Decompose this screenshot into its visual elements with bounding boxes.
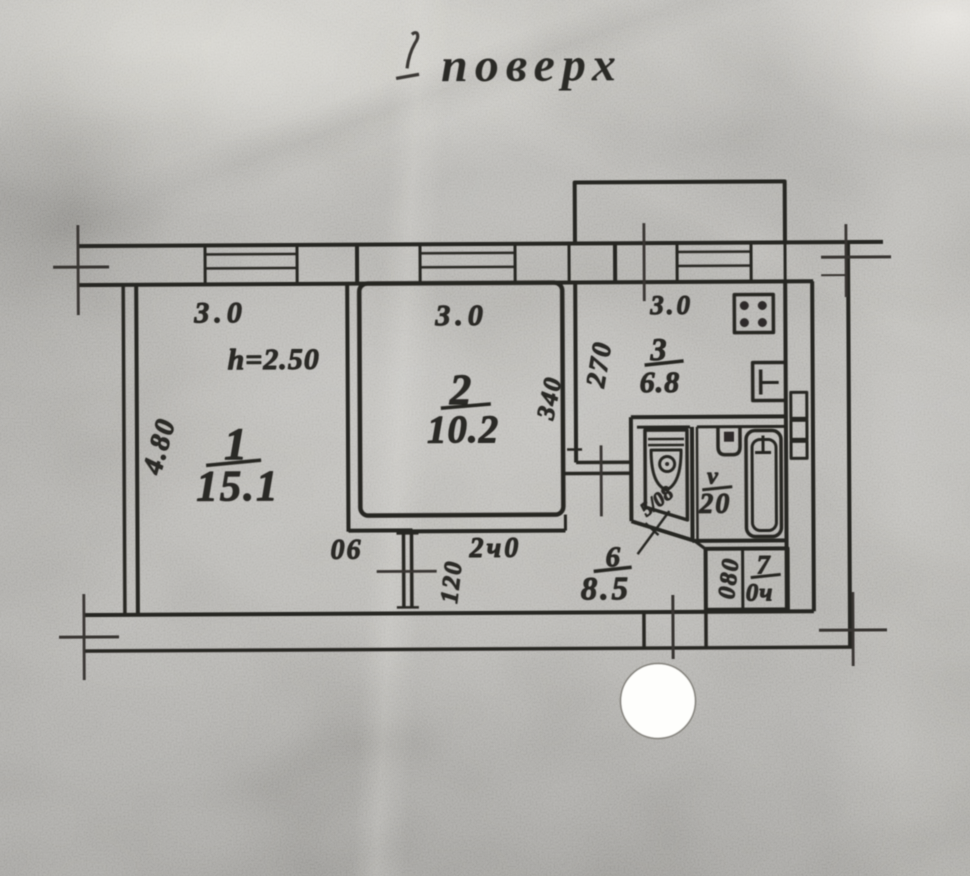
svg-text:20: 20	[698, 489, 731, 520]
svg-text:h=2.50: h=2.50	[227, 343, 319, 376]
svg-text:3.0: 3.0	[434, 299, 488, 332]
svg-text:4.80: 4.80	[137, 414, 183, 478]
svg-text:6.8: 6.8	[640, 366, 681, 399]
svg-text:0ч: 0ч	[746, 579, 774, 606]
svg-text:3: 3	[649, 331, 666, 367]
svg-text:3.0: 3.0	[649, 290, 693, 320]
svg-text:1: 1	[224, 418, 247, 469]
svg-text:v: v	[707, 464, 718, 490]
svg-text:270: 270	[580, 338, 618, 390]
svg-text:10.2: 10.2	[427, 408, 499, 451]
svg-text:7: 7	[757, 550, 771, 579]
svg-text:120: 120	[436, 558, 468, 604]
svg-text:06: 06	[330, 535, 362, 566]
svg-text:340: 340	[532, 374, 567, 423]
svg-text:2ч0: 2ч0	[468, 533, 521, 564]
svg-text:поверх: поверх	[441, 38, 623, 92]
svg-text:5/08: 5/08	[636, 482, 678, 521]
svg-text:15.1: 15.1	[196, 463, 279, 510]
svg-text:2: 2	[449, 367, 472, 414]
svg-text:3.0: 3.0	[193, 296, 247, 329]
svg-text:080: 080	[714, 556, 745, 601]
svg-text:8.5: 8.5	[581, 571, 631, 607]
svg-text:6: 6	[606, 541, 621, 573]
